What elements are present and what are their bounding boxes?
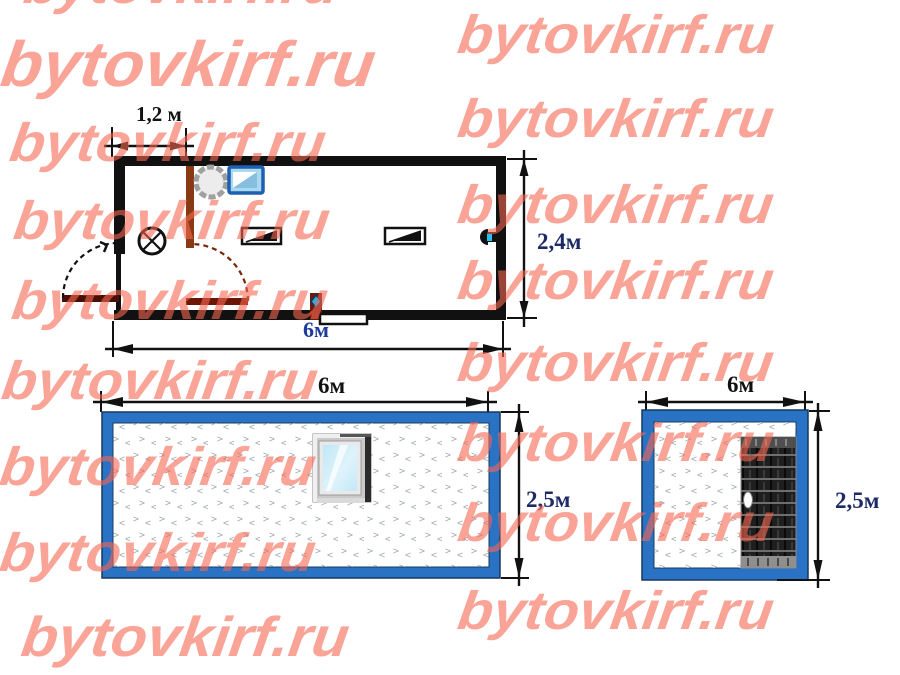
socket-symbol [480, 229, 496, 245]
plan-wall-left [114, 156, 125, 254]
plan-wall-right [496, 156, 506, 320]
heater-symbol [242, 228, 281, 244]
entrance-door-swing-arc [63, 243, 118, 298]
interior-door-swing-arc [191, 244, 248, 301]
interior-door-leaf [186, 298, 248, 305]
dimension-label-plan-width: 6м [303, 317, 329, 342]
dimension-label-side-height: 2,5м [526, 487, 570, 512]
technical-drawing: > < > < [0, 0, 900, 675]
dimension-label-end-height: 2,5м [835, 488, 879, 513]
dimension-label-plan-height: 2,4м [537, 229, 581, 254]
plan-wall-top [114, 156, 506, 166]
side-elevation: 6м 2,5м [93, 373, 570, 586]
floor-plan: 1,2 м 2,4м 6м [62, 102, 581, 357]
plan-partition-wall [186, 166, 194, 248]
cabin-drawing-page: > < > < [0, 0, 900, 675]
dimension-side-width [93, 391, 497, 412]
entrance-door-symbol [62, 243, 119, 302]
dimension-label-wc-width: 1,2 м [136, 102, 182, 126]
switch-symbol [100, 242, 107, 252]
dimension-label-side-width: 6м [318, 373, 345, 398]
washbasin-symbol [229, 167, 263, 193]
dimension-label-end-width: 6м [727, 372, 754, 397]
entrance-door-leaf [62, 295, 119, 302]
side-panel-texture [113, 423, 489, 567]
dimension-side-height [501, 404, 529, 586]
dimension-plan-height [507, 150, 537, 327]
door-handle [744, 492, 753, 508]
end-door [741, 437, 796, 568]
lamp-symbol [139, 228, 165, 254]
end-elevation: 6м [638, 372, 879, 588]
water-tank-symbol [196, 167, 226, 197]
interior-door-symbol [186, 244, 248, 305]
side-window [313, 434, 371, 503]
dimension-end-width [638, 391, 813, 410]
heater-symbol [385, 228, 425, 244]
